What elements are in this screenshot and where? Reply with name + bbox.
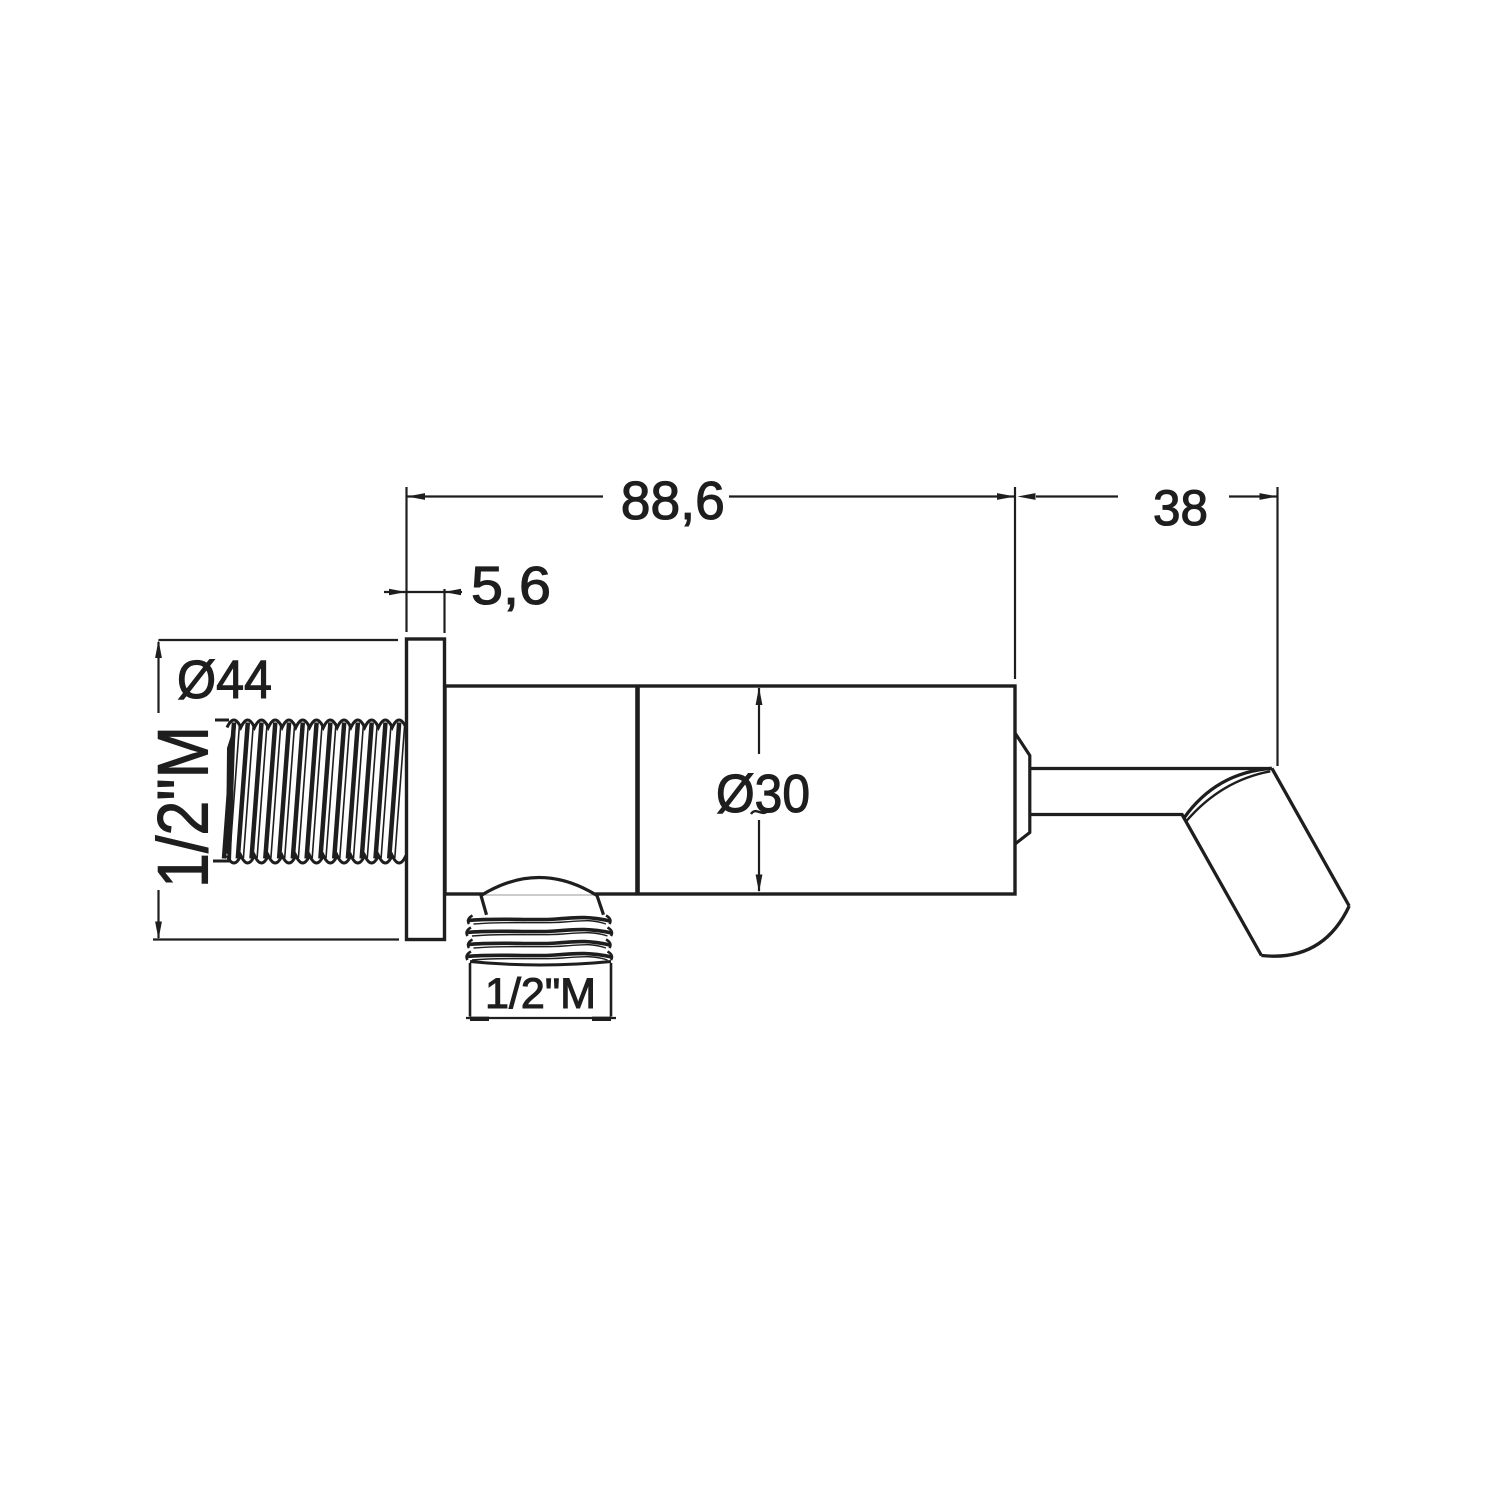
svg-text:Ø30: Ø30 bbox=[716, 765, 810, 824]
svg-text:5,6: 5,6 bbox=[471, 557, 551, 616]
svg-text:1/2"M: 1/2"M bbox=[485, 970, 596, 1018]
svg-text:88,6: 88,6 bbox=[621, 472, 725, 531]
svg-text:38: 38 bbox=[1153, 480, 1208, 536]
svg-text:Ø44: Ø44 bbox=[177, 651, 272, 710]
svg-text:1/2"M: 1/2"M bbox=[145, 726, 224, 888]
